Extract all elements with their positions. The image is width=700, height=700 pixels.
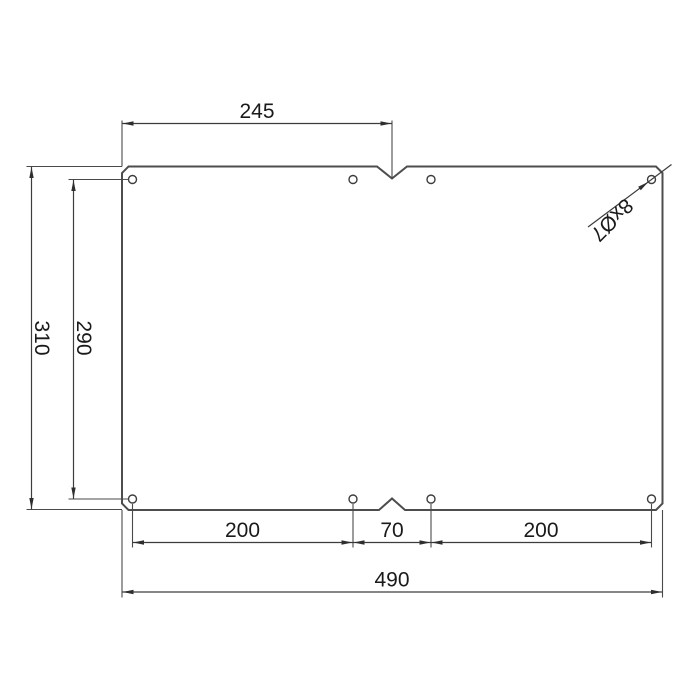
technical-drawing: 245 310 290 — [0, 0, 700, 700]
dimension-hole-span-vertical: 290 — [69, 180, 129, 500]
arrowhead — [342, 540, 353, 544]
dimension-label: 70 — [380, 519, 403, 542]
arrowhead — [29, 498, 33, 509]
dimension-label: 310 — [30, 320, 53, 355]
dimension-label: 245 — [239, 100, 274, 123]
arrowhead — [71, 488, 75, 499]
arrowhead — [123, 121, 134, 125]
hole-top-center-right — [427, 176, 435, 184]
hole-bottom-center-left — [349, 495, 357, 503]
hole-bottom-left — [129, 495, 137, 503]
hole-callout: 8xØ7 — [586, 165, 672, 246]
arrowhead — [71, 180, 75, 191]
dimension-bottom-right: 200 — [431, 519, 652, 545]
arrowhead — [133, 540, 144, 544]
drawing-canvas: 245 310 290 — [0, 0, 700, 700]
hole-callout-label: 8xØ7 — [586, 194, 638, 246]
arrowhead — [123, 590, 134, 594]
dimension-label: 200 — [225, 519, 260, 542]
dimension-label: 290 — [72, 320, 95, 355]
arrowhead — [420, 540, 431, 544]
arrowhead — [381, 121, 392, 125]
plate-outline — [122, 167, 663, 511]
arrowhead — [354, 540, 365, 544]
dimension-bottom-center: 70 — [353, 519, 431, 545]
hole-top-center-left — [349, 176, 357, 184]
arrowhead — [432, 540, 443, 544]
holes — [129, 176, 656, 504]
hole-top-left — [129, 176, 137, 184]
dimension-label: 200 — [523, 519, 558, 542]
dimension-bottom-left: 200 — [133, 519, 354, 545]
dimension-label: 490 — [374, 569, 409, 592]
arrowhead — [651, 590, 662, 594]
arrowhead — [640, 540, 651, 544]
arrowhead — [29, 167, 33, 178]
hole-bottom-right — [648, 495, 656, 503]
hole-bottom-center-right — [427, 495, 435, 503]
